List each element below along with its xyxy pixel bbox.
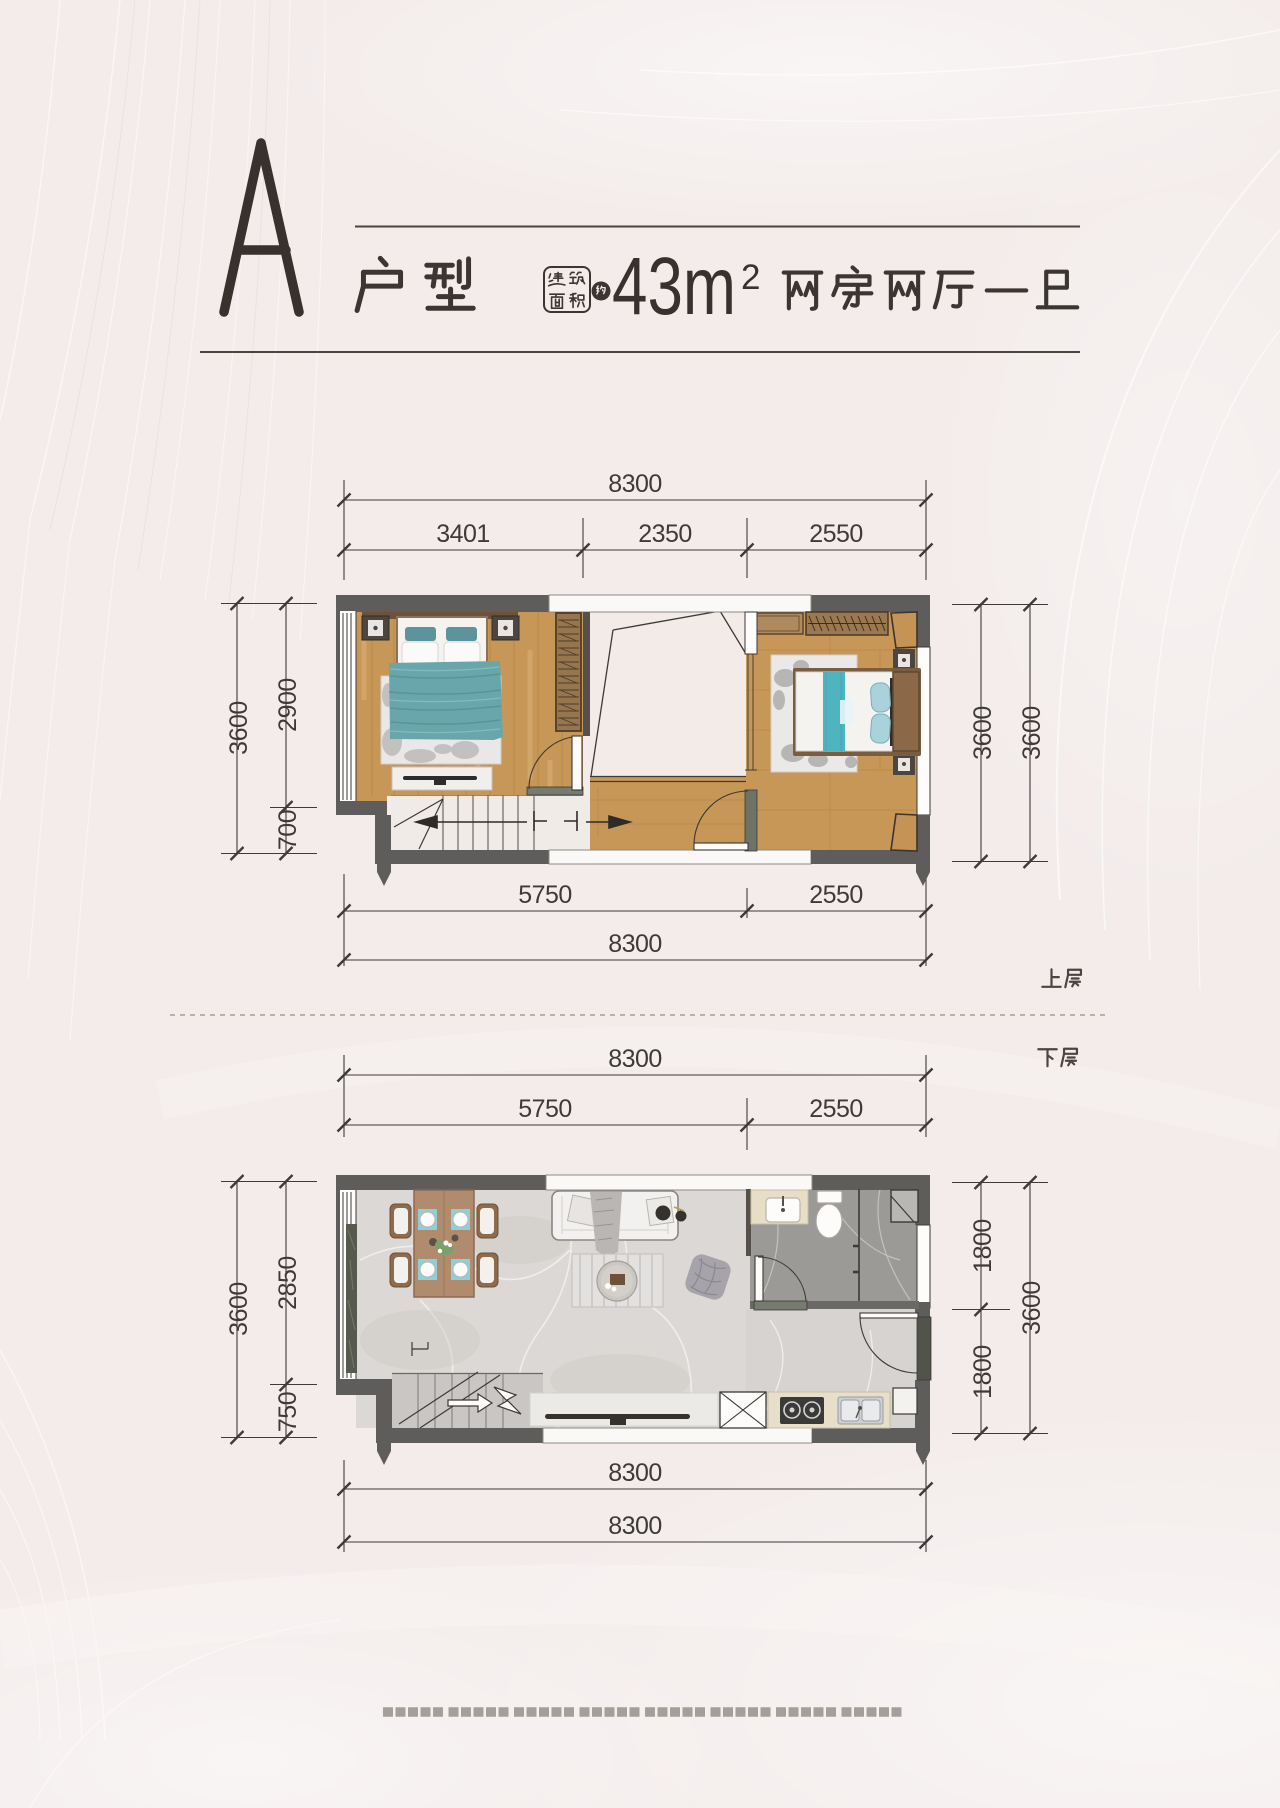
- svg-text:8300: 8300: [608, 470, 662, 498]
- svg-text:1800: 1800: [969, 1345, 997, 1399]
- svg-text:3600: 3600: [225, 1282, 253, 1336]
- svg-text:8300: 8300: [608, 1459, 662, 1487]
- svg-text:2: 2: [741, 258, 760, 297]
- svg-text:8300: 8300: [608, 1512, 662, 1540]
- svg-text:3600: 3600: [969, 706, 997, 760]
- svg-text:8300: 8300: [608, 930, 662, 958]
- svg-text:2900: 2900: [274, 678, 302, 732]
- svg-text:43m: 43m: [612, 241, 736, 332]
- svg-text:2550: 2550: [809, 520, 863, 548]
- svg-text:3600: 3600: [1018, 1281, 1046, 1335]
- svg-text:3600: 3600: [225, 701, 253, 755]
- svg-text:5750: 5750: [518, 881, 572, 909]
- svg-text:1800: 1800: [969, 1219, 997, 1273]
- svg-text:700: 700: [274, 810, 302, 850]
- svg-text:2850: 2850: [274, 1256, 302, 1310]
- svg-text:3600: 3600: [1018, 706, 1046, 760]
- svg-text:750: 750: [274, 1392, 302, 1432]
- svg-text:2550: 2550: [809, 1095, 863, 1123]
- svg-text:3401: 3401: [436, 520, 490, 548]
- svg-text:8300: 8300: [608, 1045, 662, 1073]
- svg-text:2550: 2550: [809, 881, 863, 909]
- svg-text:2350: 2350: [638, 520, 692, 548]
- svg-text:5750: 5750: [518, 1095, 572, 1123]
